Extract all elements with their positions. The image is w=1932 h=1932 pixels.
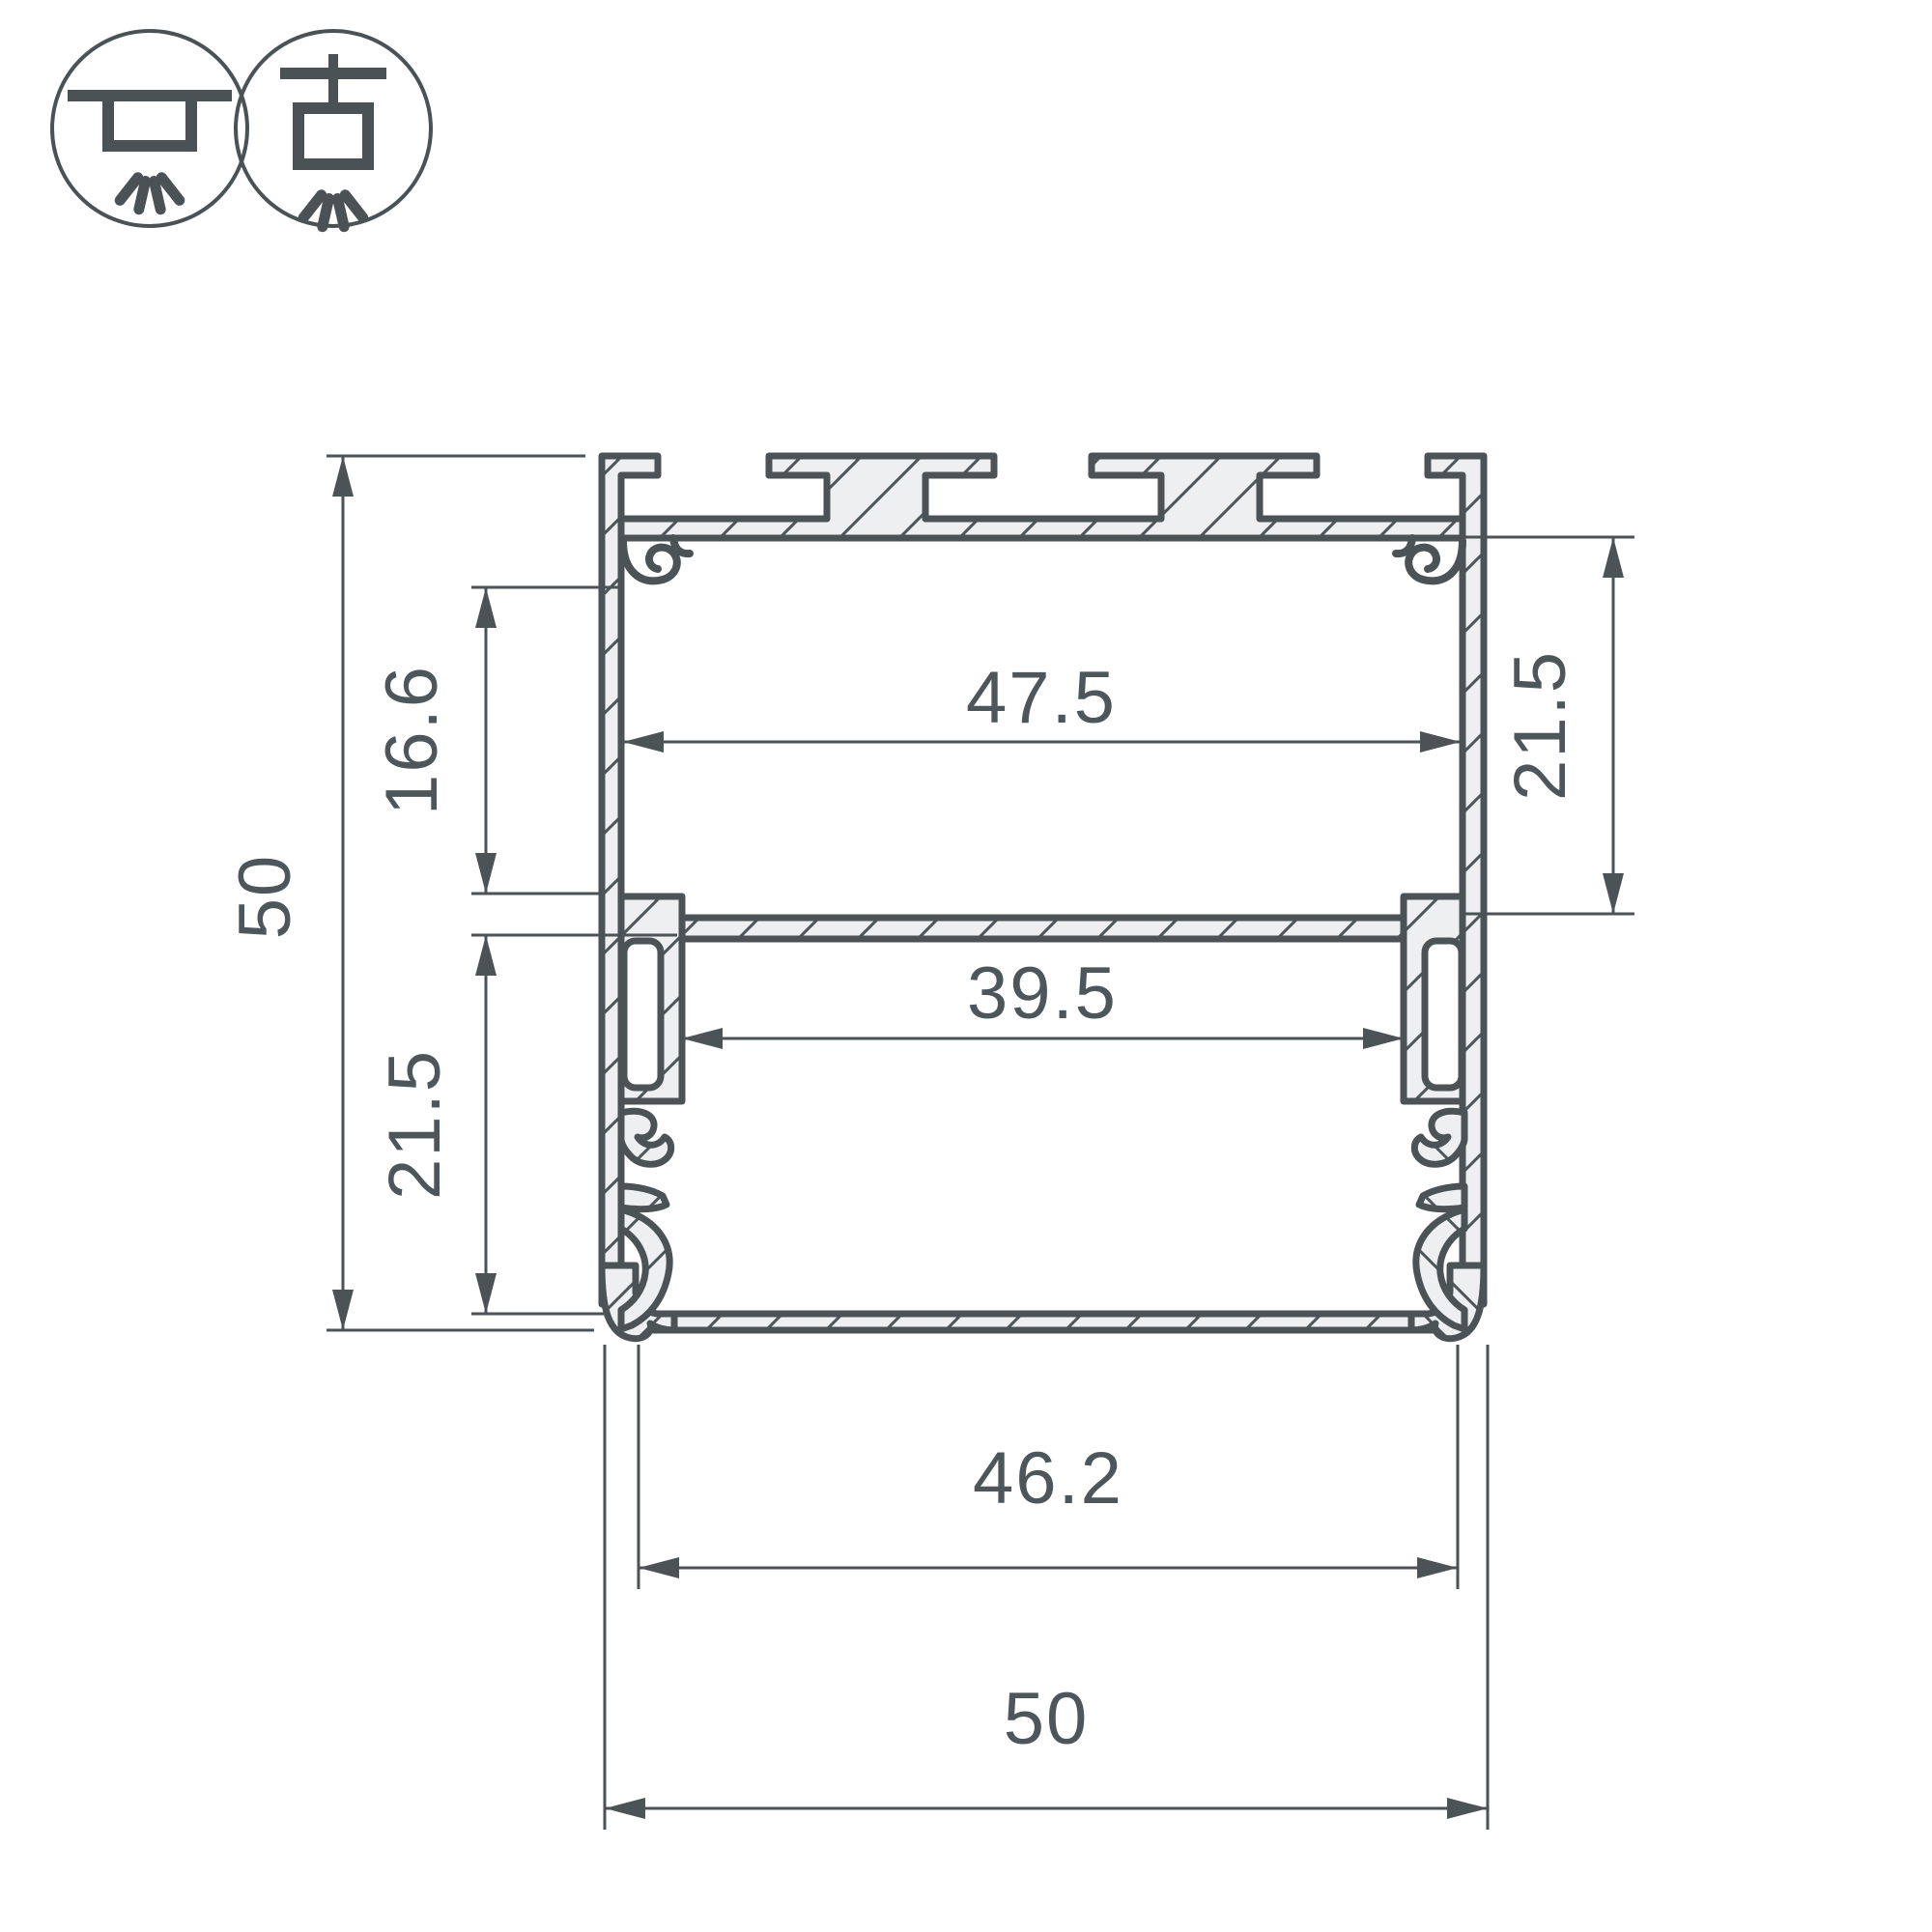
label-lower-inner-width: 46.2 [973,1437,1123,1520]
technical-drawing-page: 50 16.6 21.5 21.5 47.5 39.5 46.2 50 [0,0,1932,1932]
divider-shelf [682,918,1404,939]
profile-cross-section [602,456,1484,1339]
label-overall-height: 50 [224,854,306,940]
dimension-labels: 50 16.6 21.5 21.5 47.5 39.5 46.2 50 [224,650,1581,1760]
clip-wave [621,1111,671,1164]
label-lower-inner-height: 21.5 [374,1049,456,1200]
clip-tooth [621,1186,667,1209]
screw-boss [623,541,677,581]
profile-top-castellation [621,456,1463,538]
label-right-cavity-height: 21.5 [1499,650,1581,801]
screw-slot-right [1425,941,1462,1088]
pendant-mount-icon [236,31,431,227]
screw-slot-left [624,941,661,1088]
light-rays-icon [120,178,180,210]
label-upper-inner-width: 47.5 [966,657,1117,739]
profile-drawing-svg: 50 16.6 21.5 21.5 47.5 39.5 46.2 50 [0,0,1932,1932]
mount-icons [52,31,431,227]
label-shelf-window-width: 39.5 [967,952,1118,1035]
label-upper-inner-height: 16.6 [371,665,453,815]
label-overall-width: 50 [1004,1678,1090,1760]
surface-mount-icon [52,31,247,226]
